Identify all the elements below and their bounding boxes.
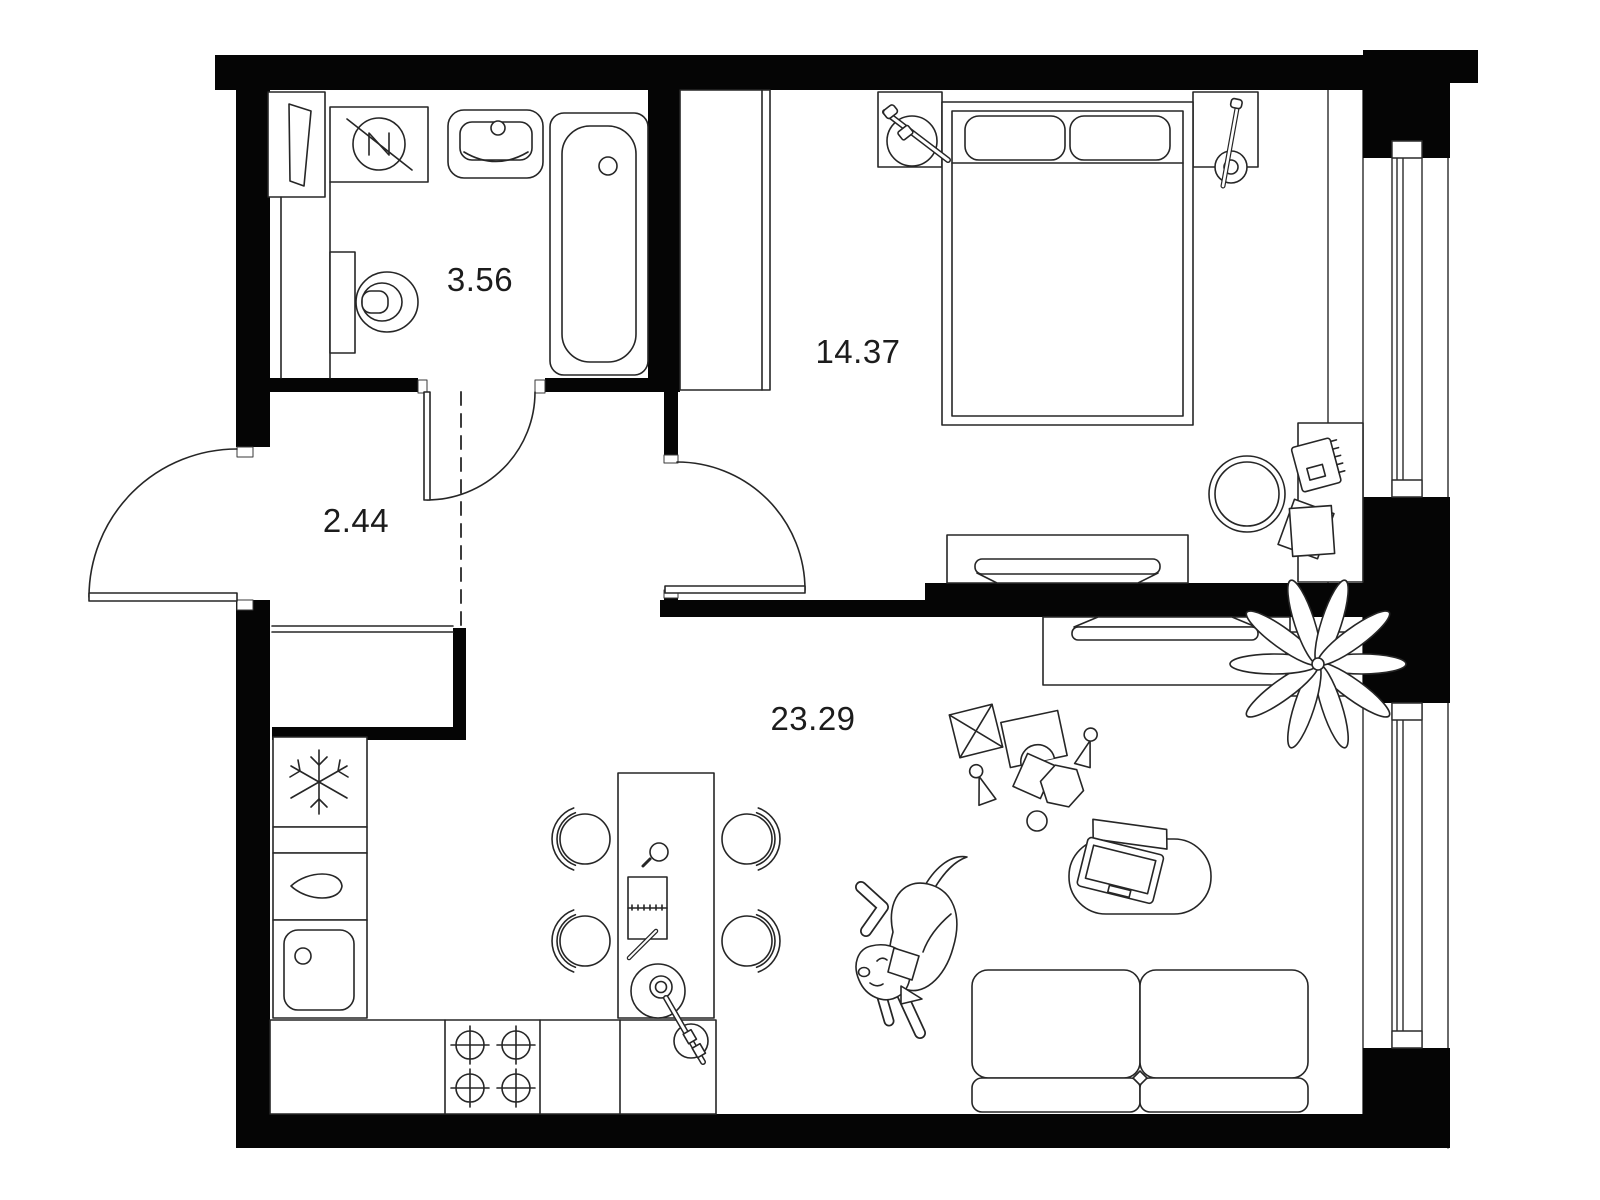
- bed: [942, 102, 1193, 425]
- chair: [722, 910, 780, 972]
- dining-set: [552, 773, 780, 1062]
- kitchen-cabinet: [273, 827, 367, 853]
- kitchen-sink-cabinet: [273, 920, 367, 1018]
- room-label-bedroom: 14.37: [815, 333, 900, 371]
- window-bedroom: [1392, 141, 1422, 497]
- notebook: [628, 877, 667, 939]
- pouf-with-laptop: [1069, 812, 1211, 914]
- fridge: [273, 737, 367, 827]
- toy-cone: [1075, 726, 1100, 767]
- bedroom-door: [665, 462, 805, 593]
- wall-bedroom-stub-upper: [664, 392, 678, 455]
- hall-closet: [272, 626, 453, 632]
- wall-closet-right: [453, 628, 466, 740]
- toy-ball: [1027, 811, 1047, 831]
- toilet: [330, 252, 418, 353]
- tv-stand-living: [1043, 617, 1290, 685]
- room-label-living-kitchen: 23.29: [770, 700, 855, 738]
- window-living: [1392, 703, 1422, 1048]
- pillar-bottom-right: [1363, 1048, 1450, 1148]
- wall-divider-thin: [660, 600, 925, 617]
- wall-left-upper: [236, 90, 270, 447]
- dishwasher: [273, 853, 367, 920]
- living-room: [856, 577, 1406, 1112]
- toy-kite: [949, 704, 1002, 757]
- wall-bath-south-left: [268, 378, 418, 392]
- bathroom-sink: [448, 110, 543, 178]
- bathroom: [268, 92, 648, 378]
- tv-dresser-bedroom: [947, 535, 1188, 583]
- wall-top: [215, 55, 1363, 90]
- toys: [949, 704, 1100, 831]
- wall-bath-bedroom: [648, 87, 680, 392]
- wall-bath-south-right: [545, 378, 648, 392]
- toy-cone: [965, 762, 995, 805]
- wall-bottom: [236, 1114, 1363, 1148]
- bathroom-door: [424, 392, 535, 500]
- kitchen-counter: [270, 1020, 716, 1114]
- chair: [552, 808, 610, 870]
- duct-panel: [281, 182, 330, 378]
- wall-stub-top-right: [1450, 50, 1478, 83]
- doors: [89, 392, 805, 601]
- wall-left-lower: [236, 600, 270, 1114]
- room-label-bathroom: 3.56: [447, 261, 513, 299]
- bedroom: [680, 90, 1363, 583]
- sofa: [972, 970, 1308, 1112]
- papers: [1278, 499, 1335, 558]
- desk: [1278, 423, 1363, 582]
- washing-machine: [330, 107, 428, 182]
- chair: [722, 808, 780, 870]
- bathroom-shelf: [268, 92, 325, 197]
- room-label-hallway: 2.44: [323, 502, 389, 540]
- chair: [552, 910, 610, 972]
- floor-plan-drawing: [0, 0, 1600, 1200]
- entry-door: [89, 449, 237, 601]
- bathtub: [550, 113, 648, 375]
- floor-plan: 3.56 2.44 14.37 23.29: [0, 0, 1600, 1200]
- desk-chair: [1209, 456, 1285, 532]
- dog: [856, 857, 967, 1033]
- wardrobe: [680, 90, 770, 390]
